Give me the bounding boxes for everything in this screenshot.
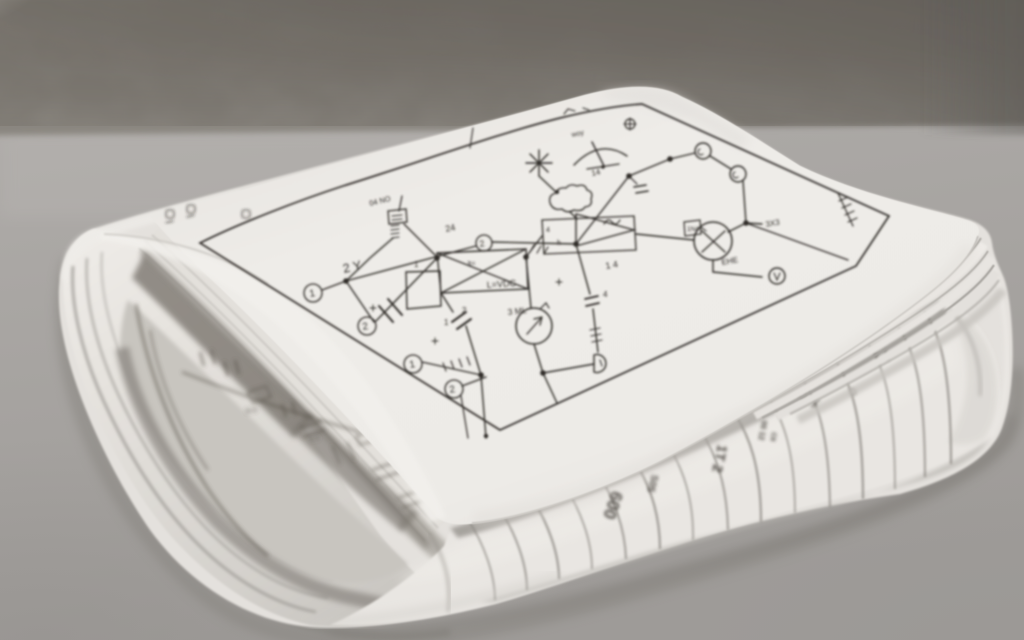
svg-text:1: 1 [444,318,449,327]
svg-text:24: 24 [444,222,456,234]
svg-text:lt=: lt= [468,260,476,268]
svg-text:h: h [557,240,561,247]
svg-text:3 ML: 3 ML [507,305,527,317]
svg-text:1N4: 1N4 [687,226,699,233]
svg-text:4: 4 [603,290,608,299]
svg-text:2: 2 [462,306,467,315]
svg-text:1 4: 1 4 [605,259,619,271]
svg-text:L=VDC: L=VDC [486,278,516,290]
svg-text:4: 4 [546,227,550,234]
svg-text:1: 1 [414,260,419,269]
